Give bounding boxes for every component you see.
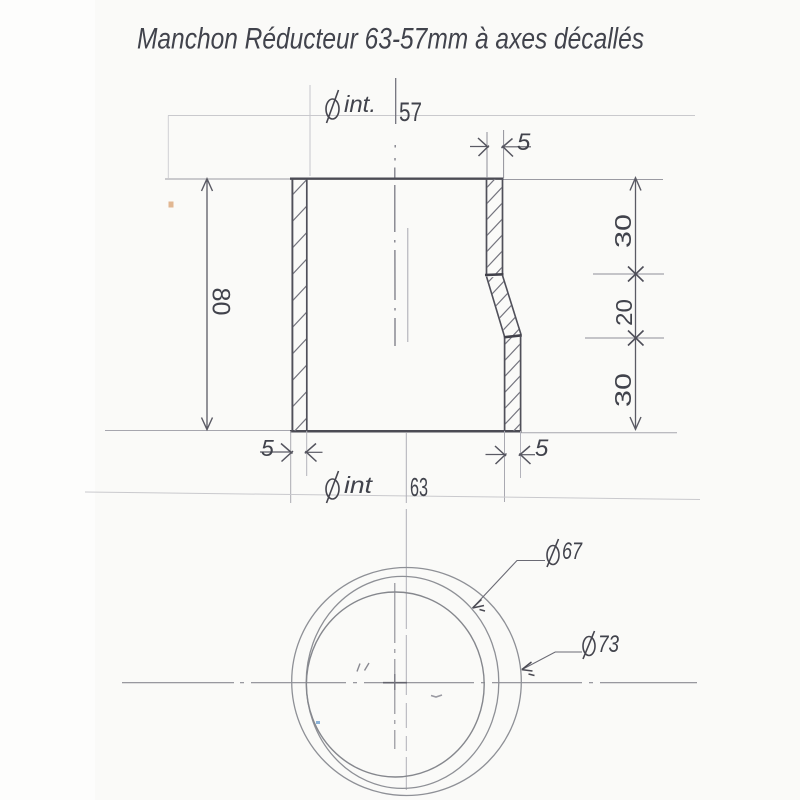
svg-text:5: 5 [261, 435, 274, 461]
svg-text:Manchon Réducteur 63-57mm à ax: Manchon Réducteur 63-57mm à axes décallé… [137, 23, 644, 56]
svg-text:30: 30 [610, 214, 636, 248]
svg-text:5: 5 [517, 129, 531, 156]
svg-text:67: 67 [562, 538, 583, 565]
svg-text:int: int [344, 472, 374, 498]
svg-text:57: 57 [399, 97, 422, 127]
svg-text:63: 63 [410, 472, 428, 502]
svg-text:80: 80 [207, 288, 235, 316]
svg-text:20: 20 [611, 299, 637, 326]
svg-text:int.: int. [344, 91, 376, 117]
svg-text:5: 5 [535, 435, 549, 462]
svg-text:73: 73 [598, 631, 620, 658]
svg-text:30: 30 [610, 373, 636, 407]
